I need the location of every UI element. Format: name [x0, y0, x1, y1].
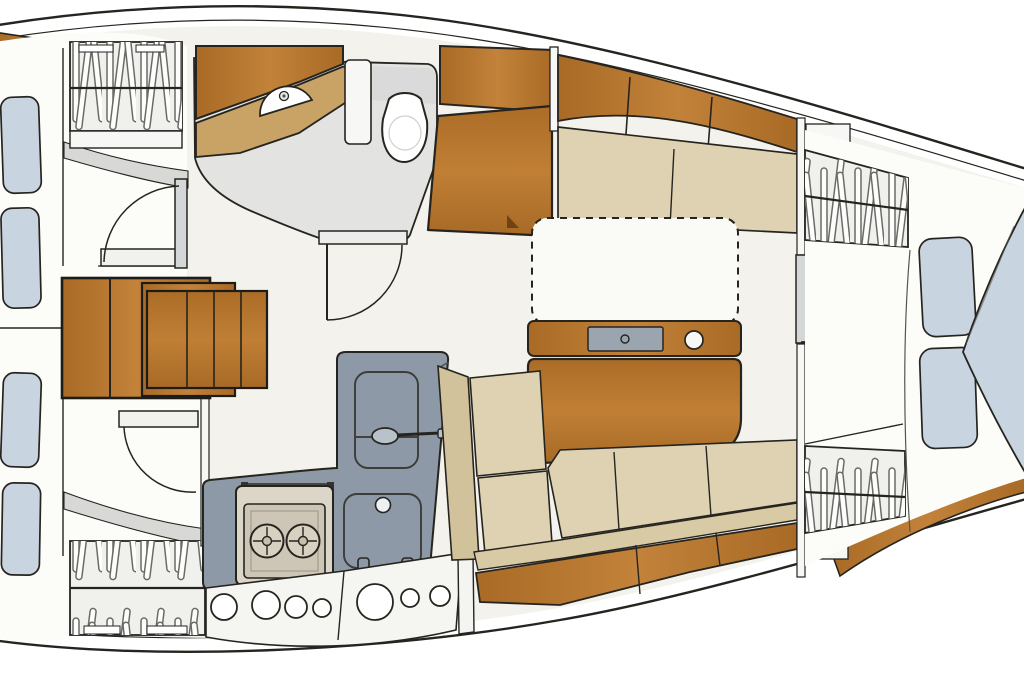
berth-pillow	[0, 96, 41, 193]
burner-hub	[263, 537, 272, 546]
hanging-locker-port-aft	[70, 42, 182, 148]
berth-pillow	[1, 483, 41, 576]
companionway-steps	[62, 278, 267, 398]
table-inset-tray	[588, 327, 663, 351]
vanity-faucet-dot	[282, 94, 285, 97]
boat-floorplan	[0, 0, 1024, 680]
burner-hub	[299, 537, 308, 546]
locker-rail-end	[79, 45, 113, 52]
stove	[236, 482, 334, 585]
porthole	[211, 594, 237, 620]
porthole	[401, 589, 419, 607]
head-door-sill	[319, 231, 407, 244]
bulkhead-bar	[797, 118, 805, 255]
icebox-knob	[376, 498, 391, 513]
locker-rail-end	[147, 626, 187, 634]
porthole	[285, 596, 307, 618]
cabin-door-leaf	[119, 411, 198, 427]
berth-pillow	[918, 237, 976, 338]
boat-floorplan-page	[0, 0, 1024, 680]
chart-locker-wood-slab	[428, 106, 552, 236]
settee-end-panel	[458, 554, 474, 634]
toilet-bowl	[389, 116, 421, 150]
step-tier	[147, 291, 267, 388]
table-folded-leaf-outline	[532, 218, 738, 324]
head-partition	[345, 60, 371, 144]
partition-bar	[550, 47, 558, 131]
hanging-locker-starboard-aft	[70, 541, 205, 635]
porthole	[252, 591, 280, 619]
locker-rail-end	[136, 45, 164, 52]
cabin-door-leaf	[175, 179, 187, 268]
locker-rail-end	[84, 626, 120, 634]
forward-cabin-door-leaf	[796, 255, 806, 343]
bulkhead-bar	[797, 344, 805, 577]
faucet-body	[372, 428, 398, 444]
berth-pillow	[1, 208, 42, 309]
berth-pillow	[0, 372, 41, 467]
upper-cabinet-wood	[440, 46, 554, 112]
salon-table	[528, 218, 741, 463]
faucet-arm	[397, 433, 440, 435]
settee-cushion	[470, 371, 546, 476]
porthole	[313, 599, 331, 617]
porthole	[357, 584, 393, 620]
porthole	[430, 586, 450, 606]
locker-shelf	[70, 131, 182, 148]
table-cup-holder	[685, 331, 703, 349]
doorway-threshold	[101, 249, 180, 266]
